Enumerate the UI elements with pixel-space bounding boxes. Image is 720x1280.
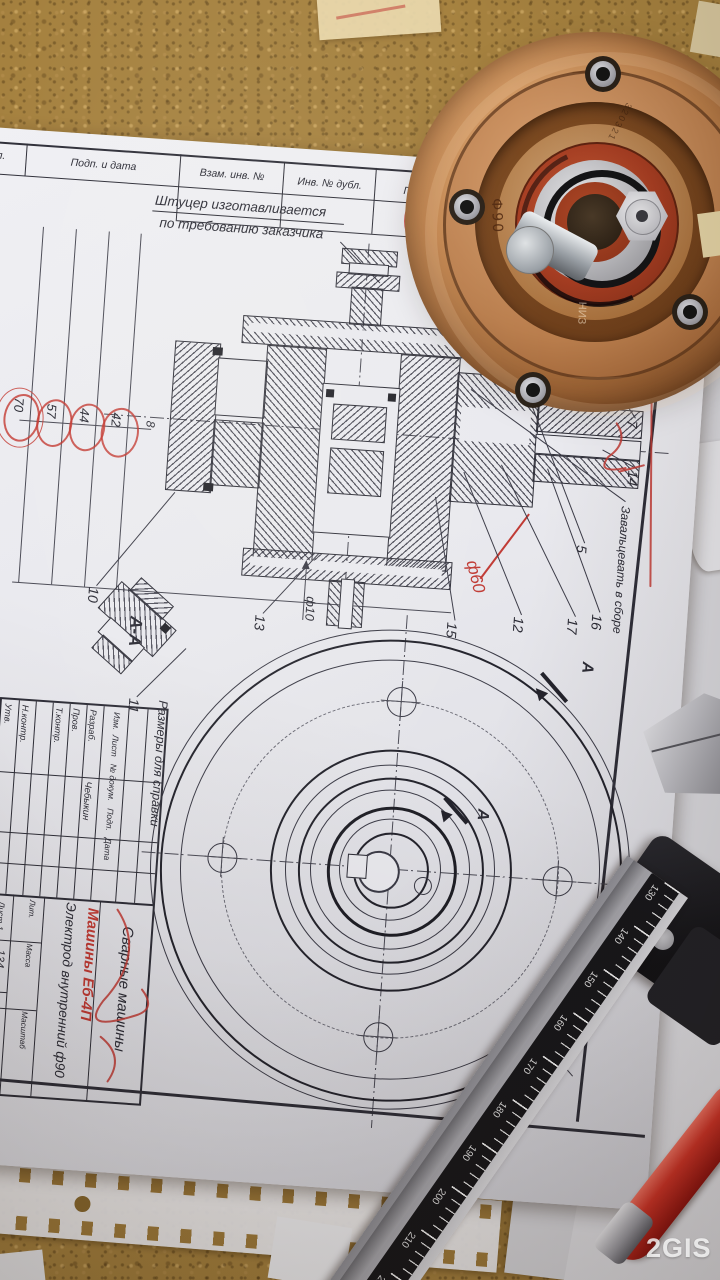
seal [203,483,214,492]
seal [212,347,223,356]
bolt-hex [596,67,610,81]
callout-13: 13 [251,614,268,631]
tb-approve-label: Утв. [2,703,13,724]
margin-label: Инв. № подл. [0,144,22,163]
part-nut-center [636,210,648,222]
section-aa-label: А-А [124,616,146,648]
margin-label: Инв. № дубл. [286,175,373,193]
tb-checker-label: Пров. [70,708,82,732]
caliper-rail [313,860,647,1280]
tb-line [0,939,41,944]
cut-arrow-label: А [577,661,596,674]
tape-corner [690,1,720,60]
part-stamp-mark: НИЗ [575,302,588,325]
caliper: 130 140 150 160 170 180 190 200 210 220 [300,820,720,1280]
strip-divider [24,143,27,176]
tb-line [39,703,54,897]
cavity-insert-b [327,447,384,497]
tb-mass-label: Масса [23,943,34,967]
callout-5: 5 [574,545,591,554]
leader-10 [96,492,175,586]
left-lower-block [209,419,263,488]
blade-edge-line [651,730,720,753]
leader-16 [547,468,600,612]
left-bore [214,357,268,418]
tb-lit-label: Лит. [27,899,37,918]
section-baseline [12,582,451,614]
seal [326,389,335,398]
margin-label: Взам. инв. № [185,166,280,185]
caliper-beam: 130 140 150 160 170 180 190 200 210 220 [306,856,688,1280]
callout-10: 10 [85,587,102,604]
callout-16: 16 [588,614,605,631]
margin-label: Подп. и дата [33,154,173,176]
callout-14: 14 [624,470,641,487]
cavity-insert-a [331,404,387,444]
fitting-stem [349,287,384,327]
callout-17: 17 [564,618,581,635]
tb-line [5,700,20,894]
tb-line [30,897,45,1097]
watermark: 2GIS [646,1233,712,1264]
red-dim-f60: ф60 [462,558,489,595]
film-dot [74,1195,91,1212]
callout-12: 12 [510,616,527,633]
metal-part: Ф90 НИЗ 320321 [420,30,720,430]
dim-value-8: 8 [143,420,157,428]
part-stamp-diameter: Ф90 [488,198,505,234]
note-line2: по требованию заказчика [159,215,324,241]
part-washer [506,226,554,274]
crimp-note: Завальцевать в сборе [610,506,633,635]
paper-fragment-small [0,1249,46,1280]
tb-line [134,709,149,903]
bolt-hex [460,200,474,214]
photo-scene: Инв. № подл. Подп. и дата Взам. инв. № И… [0,0,720,1280]
dim-value-f10: ф10 [302,596,318,621]
bolt-hex [683,305,697,319]
caliper-number: 220 [368,1273,387,1280]
seal [388,393,397,402]
bolt-hex [526,383,540,397]
tape-red-mark [336,5,405,20]
red-arrow-f60 [480,513,530,579]
tb-line [0,990,7,993]
